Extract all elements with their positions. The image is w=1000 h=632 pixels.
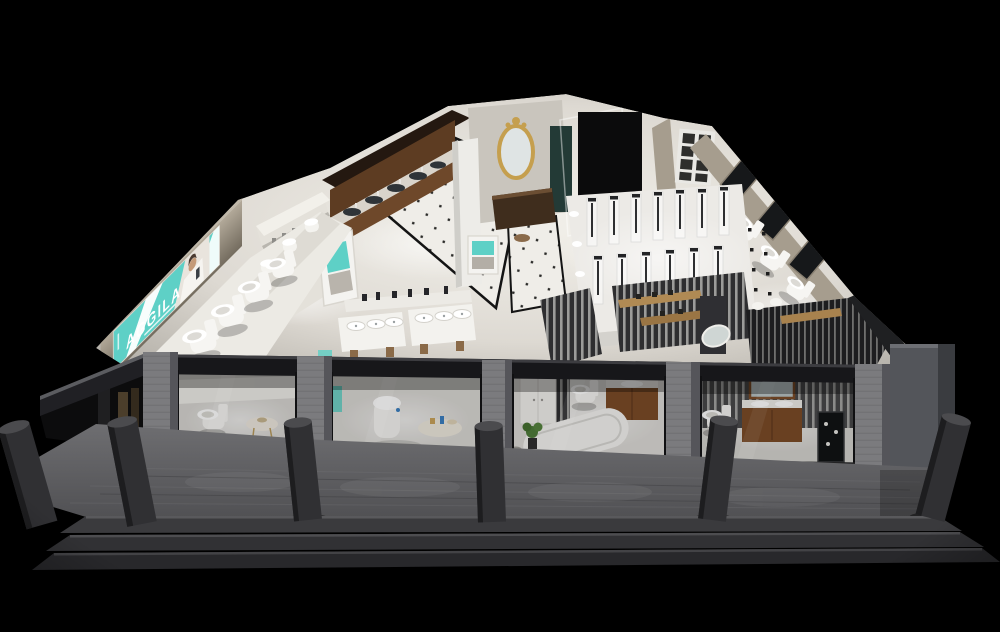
showroom-3d-render: AGGILA	[0, 0, 1000, 632]
render-canvas: AGGILA	[0, 0, 1000, 632]
vignette-overlay	[0, 0, 1000, 632]
